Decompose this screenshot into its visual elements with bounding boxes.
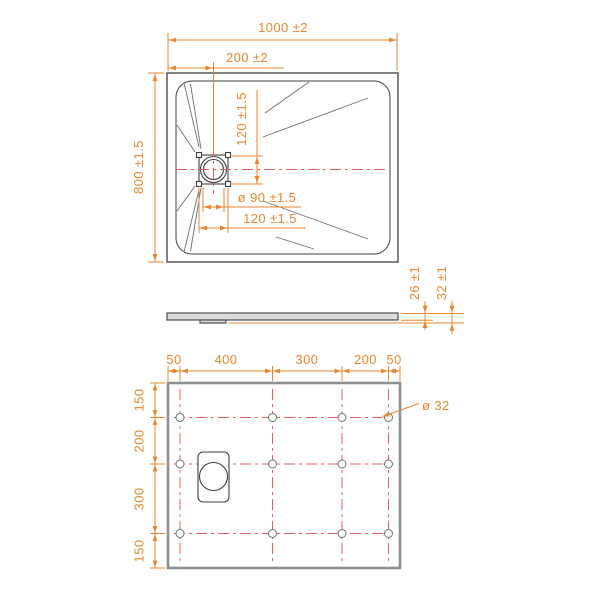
dim-drain-offset: 200 ±2: [226, 50, 268, 65]
dim-bottom-50-left: 50: [166, 352, 181, 367]
shower-tray-technical-drawing: 1000 ±2 200 ±2 800 ±1.5 120 ±1.5 ø 90 ±1…: [0, 0, 600, 600]
drain-corner-tab: [226, 153, 231, 158]
mounting-hole: [269, 414, 277, 422]
mounting-hole: [269, 530, 277, 538]
dim-bottom-200: 200: [354, 352, 377, 367]
dim-overall-width: 1000 ±2: [258, 20, 308, 35]
mounting-hole: [176, 530, 184, 538]
drain-housing-circle: [200, 463, 228, 491]
mounting-hole: [176, 460, 184, 468]
side-profile-bar: [167, 313, 398, 320]
mounting-hole: [338, 530, 346, 538]
drain-boss: [200, 320, 226, 323]
mounting-hole: [176, 414, 184, 422]
drain-corner-tab: [197, 182, 202, 187]
drain-corner-tab: [226, 182, 231, 187]
drain-corner-tab: [197, 153, 202, 158]
dim-drain-square-width: 120 ±1.5: [243, 211, 297, 226]
dim-foot-hole-diameter: ø 32: [422, 398, 450, 413]
top-view-plan: 1000 ±2 200 ±2 800 ±1.5 120 ±1.5 ø 90 ±1…: [131, 20, 398, 262]
dim-left-150-bottom: 150: [132, 540, 147, 563]
mounting-hole: [385, 530, 393, 538]
dim-left-200: 200: [132, 430, 147, 453]
mounting-hole: [385, 460, 393, 468]
dim-bottom-50-right: 50: [386, 352, 401, 367]
dim-drain-diameter: ø 90 ±1.5: [238, 190, 296, 205]
dim-bottom-300: 300: [296, 352, 319, 367]
dim-left-300: 300: [132, 488, 147, 511]
dim-bottom-400: 400: [215, 352, 238, 367]
mounting-hole: [338, 460, 346, 468]
dim-left-150-top: 150: [132, 389, 147, 412]
mounting-hole: [338, 414, 346, 422]
dim-overall-depth: 800 ±1.5: [131, 140, 146, 194]
dim-drain-square-height: 120 ±1.5: [234, 92, 249, 146]
mounting-hole: [269, 460, 277, 468]
dim-edge-thickness: 26 ±1: [407, 266, 422, 300]
bottom-view-plan: 50 400 300 200 50 150 200 300 150 ø 32: [132, 352, 450, 568]
dim-total-thickness: 32 ±1: [434, 266, 449, 300]
side-view-profile: 26 ±1 32 ±1: [167, 266, 464, 334]
